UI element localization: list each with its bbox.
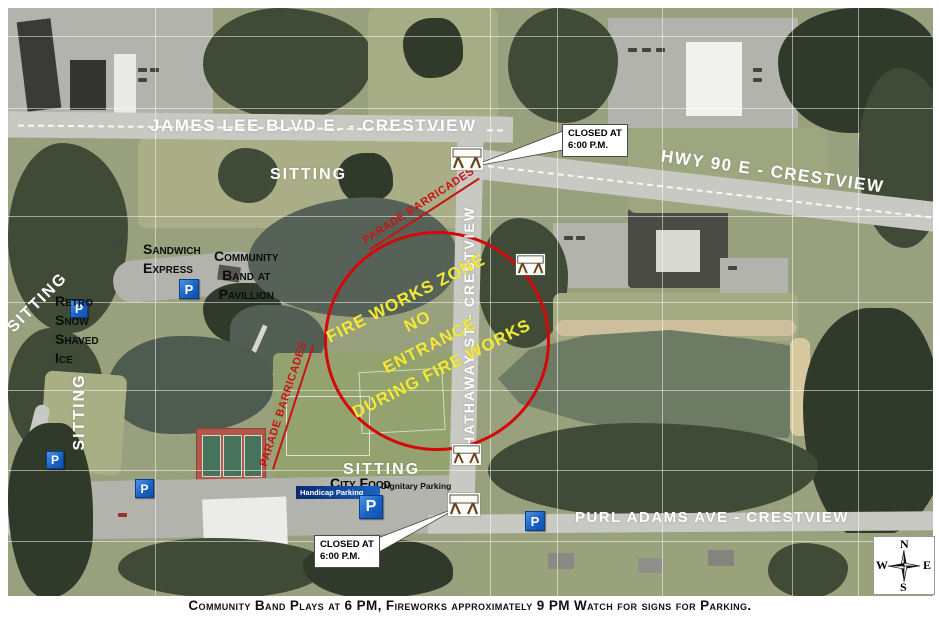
sitting-label-left-vertical: SITTING	[71, 373, 89, 450]
handicap-parking-label: Handicap Parking	[300, 488, 363, 497]
community-band-label: Community Band at Pavillion	[214, 247, 279, 304]
compass-e: E	[923, 558, 931, 573]
grid-line	[8, 470, 933, 471]
grid-line	[8, 108, 933, 109]
closed-note-south: CLOSED AT 6:00 P.M.	[314, 535, 380, 568]
barricade-icon	[448, 493, 480, 516]
parking-icon: P	[135, 479, 154, 498]
retro-snow-label: Retro Snow Shaved Ice	[55, 292, 99, 368]
barricade-icon	[451, 147, 483, 170]
parking-icon: P	[525, 511, 545, 531]
building	[686, 42, 742, 116]
parking-icon: P	[46, 451, 64, 469]
house	[548, 553, 574, 569]
house	[638, 558, 662, 573]
tree-area	[118, 538, 328, 596]
building	[70, 60, 106, 110]
parking-icon: P	[359, 495, 383, 519]
lake	[108, 336, 273, 434]
event-map: JAMES LEE BLVD E. - CRESTVIEW HWY 90 E -…	[0, 0, 940, 620]
parking-icon: P	[179, 279, 199, 299]
building	[114, 54, 136, 114]
dignitary-parking-label: Dignitary Parking	[381, 481, 451, 491]
tree-area	[803, 308, 933, 538]
tree-area	[768, 543, 848, 596]
sitting-label-top: SITTING	[270, 166, 347, 184]
road-label-james-lee: JAMES LEE BLVD E. - CRESTVIEW	[150, 116, 477, 136]
grid-line	[8, 541, 933, 542]
closed-note-north: CLOSED AT 6:00 P.M.	[562, 124, 628, 157]
grid-line	[8, 36, 933, 37]
tennis-court	[196, 428, 266, 482]
tree-area	[403, 18, 463, 78]
road-label-purl-adams: PURL ADAMS AVE - CRESTVIEW	[575, 509, 849, 526]
sandwich-express-label: Sandwich Express	[143, 240, 201, 278]
tree-area	[203, 8, 373, 120]
barricade-icon	[516, 254, 545, 275]
house	[708, 550, 734, 566]
grass-area	[463, 533, 933, 596]
compass-star-icon	[887, 549, 921, 583]
barricade-icon	[452, 444, 481, 465]
tree-area	[508, 8, 618, 123]
caption: Community Band Plays at 6 PM, Fireworks …	[0, 598, 940, 613]
compass-rose: N E S W	[873, 536, 935, 595]
